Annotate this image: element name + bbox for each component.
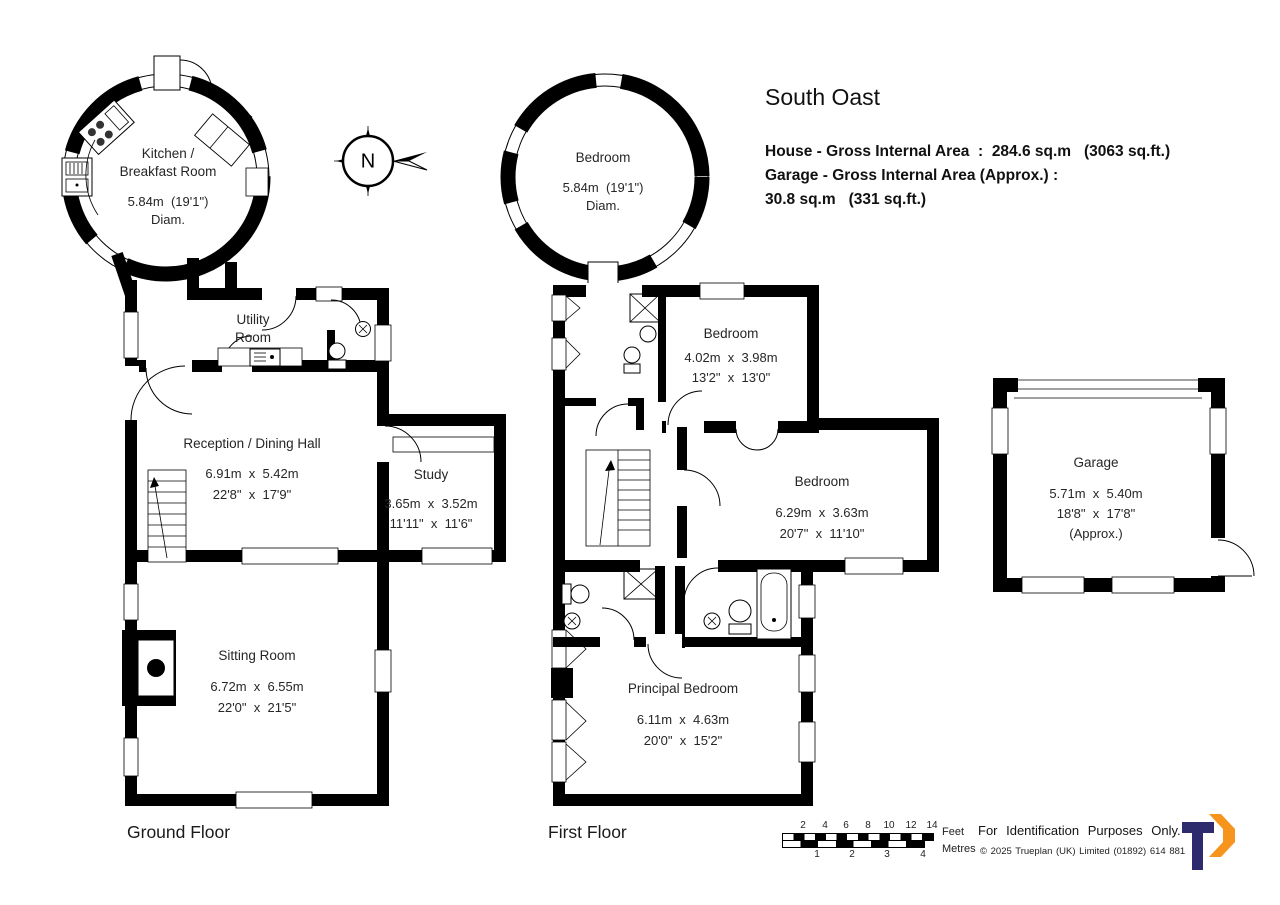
sitting-dim-m: 6.72m x 6.55m <box>210 679 303 694</box>
scale-feet-8: 8 <box>865 820 871 831</box>
study-dim-m: 3.65m x 3.52m <box>384 496 477 511</box>
kitchen-label2: Breakfast Room <box>120 164 217 179</box>
area-summary: House - Gross Internal Area : 284.6 sq.m… <box>765 140 1170 212</box>
bedroom-rear-dim-ft: 20'7" x 11'10" <box>780 526 865 541</box>
shower-icon <box>624 294 660 373</box>
principal-bedroom-dim-m: 6.11m x 4.63m <box>637 712 729 727</box>
principal-bedroom-dim-ft: 20'0" x 15'2" <box>644 733 723 748</box>
sitting-dim-ft: 22'0" x 21'5" <box>218 700 297 715</box>
garage-walls <box>992 377 1254 593</box>
study-dim-ft: 11'11" x 11'6" <box>390 516 473 531</box>
house-area-line: House - Gross Internal Area : 284.6 sq.m… <box>765 140 1170 164</box>
bedroom-front-dim-m: 4.02m x 3.98m <box>684 350 777 365</box>
kitchen-diam: Diam. <box>151 212 185 227</box>
compass-icon <box>334 126 427 196</box>
copyright-note: © 2025 Trueplan (UK) Limited (01892) 614… <box>980 846 1185 857</box>
reception-dim-m: 6.91m x 5.42m <box>205 466 298 481</box>
stairs-first-icon <box>586 450 650 546</box>
garage-label: Garage <box>1073 455 1118 470</box>
kitchen-dim: 5.84m (19'1") <box>128 194 209 209</box>
round-bedroom-dim: 5.84m (19'1") <box>563 180 644 195</box>
metres-unit-label: Metres <box>942 843 976 855</box>
reception-dim-ft: 22'8" x 17'9" <box>213 487 292 502</box>
reception-label: Reception / Dining Hall <box>183 436 320 451</box>
floorplan-page: South Oast House - Gross Internal Area :… <box>0 0 1280 905</box>
garage-dim-m: 5.71m x 5.40m <box>1049 486 1142 501</box>
scale-m-4: 4 <box>920 849 926 860</box>
washer-icon <box>218 348 302 366</box>
page-title: South Oast <box>765 84 880 111</box>
scale-bar: 2 4 6 8 10 12 14 1 2 3 4 <box>782 820 942 864</box>
principal-bedroom-label: Principal Bedroom <box>628 681 738 696</box>
scale-feet-4: 4 <box>822 820 828 831</box>
bedroom-front-label: Bedroom <box>704 326 759 341</box>
utility-label: Utility <box>237 312 270 327</box>
kitchen-label: Kitchen / <box>142 146 195 161</box>
scale-feet-14: 14 <box>926 820 937 831</box>
round-bedroom-diam: Diam. <box>586 198 620 213</box>
garage-area-line: Garage - Gross Internal Area (Approx.) : <box>765 164 1170 188</box>
utility-label2: Room <box>235 330 271 345</box>
bedroom-rear-label: Bedroom <box>795 474 850 489</box>
scale-m-2: 2 <box>849 849 855 860</box>
fireplace-icon <box>122 630 176 706</box>
bedroom-front-dim-ft: 13'2" x 13'0" <box>692 370 771 385</box>
first-floor-label: First Floor <box>548 822 627 843</box>
stairs-ground-icon <box>148 470 186 562</box>
compass-north-label: N <box>361 151 375 174</box>
scale-feet-12: 12 <box>905 820 916 831</box>
garage-approx: (Approx.) <box>1069 526 1122 541</box>
scale-feet-6: 6 <box>843 820 849 831</box>
feet-unit-label: Feet <box>942 826 964 838</box>
ground-floor-label: Ground Floor <box>127 822 230 843</box>
scale-bar-metres <box>782 840 925 848</box>
scale-m-3: 3 <box>884 849 890 860</box>
trueplan-logo <box>1182 814 1235 870</box>
scale-feet-10: 10 <box>883 820 894 831</box>
garage-dim-ft: 18'8" x 17'8" <box>1057 506 1136 521</box>
identification-note: For Identification Purposes Only. <box>978 823 1181 838</box>
scale-feet-2: 2 <box>800 820 806 831</box>
scale-m-1: 1 <box>814 849 820 860</box>
sitting-label: Sitting Room <box>218 648 295 663</box>
bathroom-right-icons <box>704 569 791 639</box>
bedroom-rear-dim-m: 6.29m x 3.63m <box>775 505 868 520</box>
bathroom-left-icons <box>562 569 658 629</box>
garage-area-value: 30.8 sq.m (331 sq.ft.) <box>765 188 1170 212</box>
floorplan-drawing <box>0 0 1280 905</box>
study-label: Study <box>414 467 449 482</box>
round-bedroom-label: Bedroom <box>576 150 631 165</box>
